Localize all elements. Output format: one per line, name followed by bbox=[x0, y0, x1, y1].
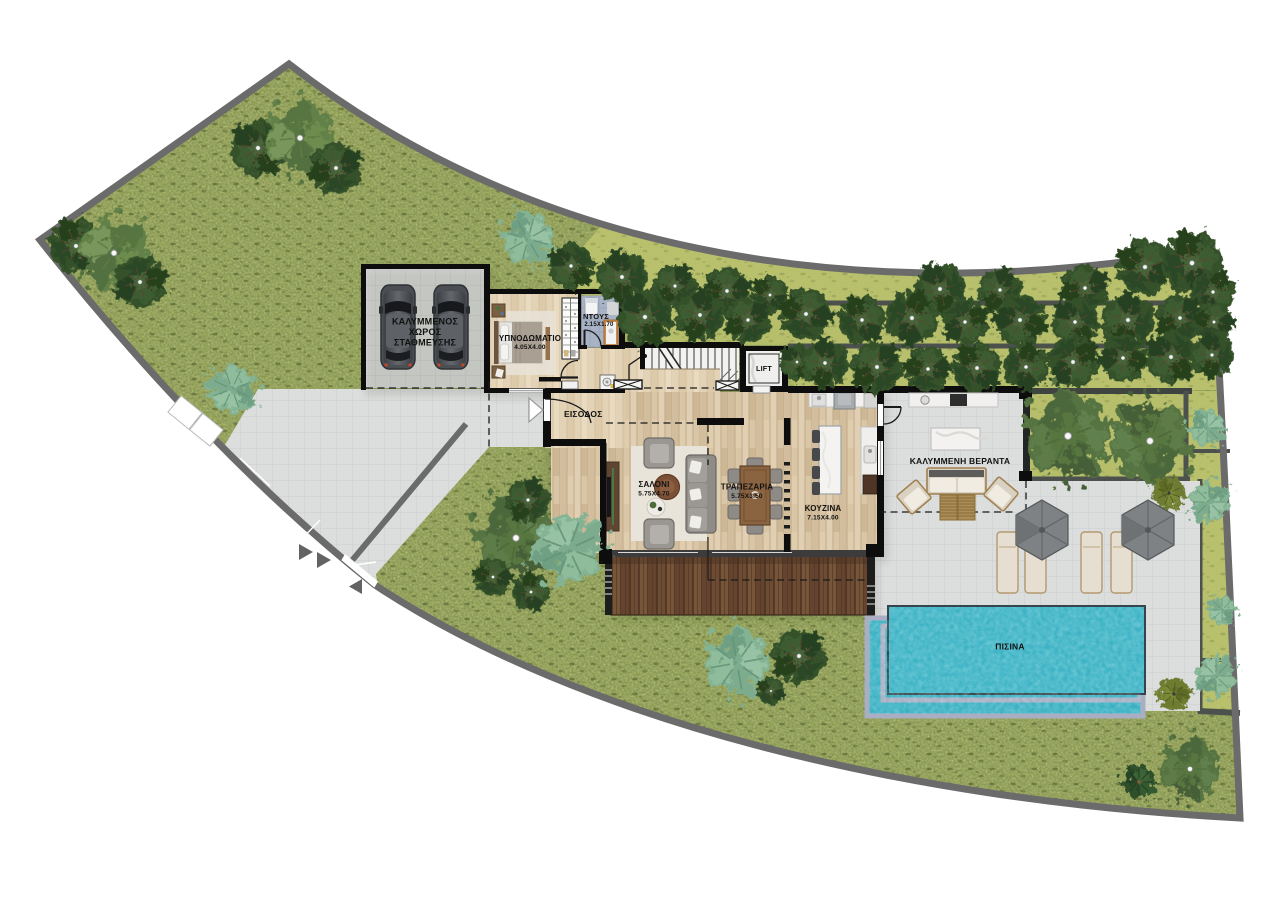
svg-text:ΝΤΟΥΣ: ΝΤΟΥΣ bbox=[583, 312, 609, 321]
svg-text:ΥΠΝΟΔΩΜΑΤΙΟ: ΥΠΝΟΔΩΜΑΤΙΟ bbox=[499, 334, 561, 343]
svg-text:5.75X3.50: 5.75X3.50 bbox=[731, 493, 763, 500]
svg-text:ΤΡΑΠΕΖΑΡΙΑ: ΤΡΑΠΕΖΑΡΙΑ bbox=[721, 483, 774, 492]
svg-text:ΣΑΛΟΝΙ: ΣΑΛΟΝΙ bbox=[638, 480, 669, 489]
svg-text:ΚΑΛΥΜΜΕΝΗ ΒΕΡΑΝΤΑ: ΚΑΛΥΜΜΕΝΗ ΒΕΡΑΝΤΑ bbox=[910, 456, 1011, 466]
svg-text:2.15X1.70: 2.15X1.70 bbox=[584, 322, 614, 328]
svg-text:ΚΑΛΥΜΜΕΝΟΣ: ΚΑΛΥΜΜΕΝΟΣ bbox=[392, 317, 458, 327]
svg-text:ΣΤΑΘΜΕΥΣΗΣ: ΣΤΑΘΜΕΥΣΗΣ bbox=[394, 338, 457, 348]
svg-text:ΧΩΡΟΣ: ΧΩΡΟΣ bbox=[409, 327, 442, 337]
svg-text:ΠΙΣΙΝΑ: ΠΙΣΙΝΑ bbox=[995, 642, 1024, 652]
svg-text:4.05X4.00: 4.05X4.00 bbox=[514, 344, 546, 351]
svg-text:ΚΟΥΖΙΝΑ: ΚΟΥΖΙΝΑ bbox=[805, 504, 842, 513]
svg-text:7.15X4.00: 7.15X4.00 bbox=[807, 515, 839, 522]
svg-text:ΕΙΣΟΔΟΣ: ΕΙΣΟΔΟΣ bbox=[564, 409, 603, 419]
svg-text:5.75X4.70: 5.75X4.70 bbox=[638, 491, 670, 498]
svg-text:LIFT: LIFT bbox=[756, 364, 772, 373]
